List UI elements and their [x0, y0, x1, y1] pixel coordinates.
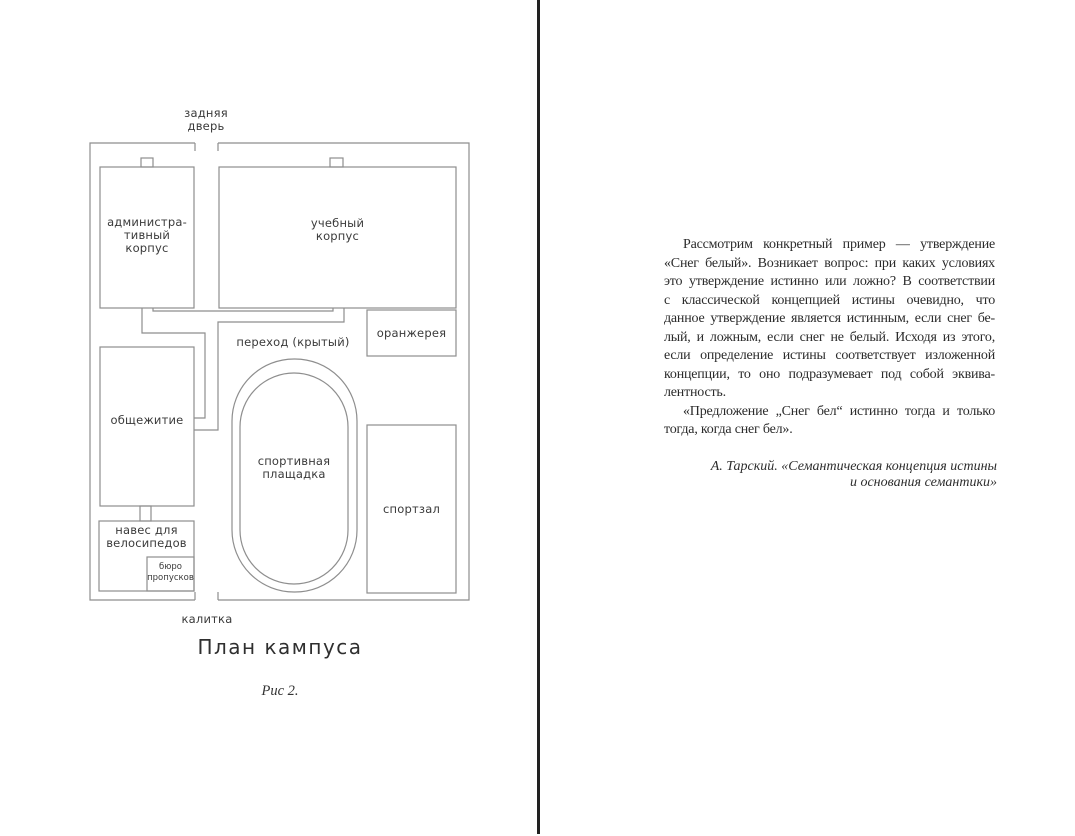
walkway-line-outer-left: [142, 308, 205, 418]
walkway-line-outer-right: [194, 308, 344, 430]
dormitory-label: общежитие: [100, 414, 194, 427]
gym-label: спортзал: [367, 503, 456, 516]
figure-number: Рис 2.: [90, 683, 470, 700]
body-text-block: Рассмотрим конкретный пример — утвержден…: [664, 236, 995, 440]
body-line: тогда, когда снег бел».: [664, 421, 995, 440]
body-line: лентность.: [664, 384, 995, 403]
attribution-line: А. Тарский. «Семантическая концепция ист…: [620, 459, 997, 475]
figure-caption: План кампуса: [90, 635, 470, 659]
admin-entrance-notch: [141, 158, 153, 167]
body-line: это утверждение истинно или ложно? В соо…: [664, 273, 995, 292]
greenhouse-label: оранжерея: [367, 327, 456, 340]
back-door-ticks: [195, 143, 218, 151]
body-line: «Предложение „Снег бел“ истинно тогда и …: [664, 403, 995, 422]
gate-ticks: [195, 592, 218, 600]
book-spread: задняя дверь администра- тивный корпус у…: [0, 0, 1075, 836]
attribution-line: и основания семантики»: [620, 475, 997, 491]
academic-building-label: учебный корпус: [219, 217, 456, 243]
body-line: Рассмотрим конкретный пример — утвержден…: [664, 236, 995, 255]
campus-plan-diagram: [0, 0, 537, 720]
dormitory-shed-notch: [140, 506, 151, 521]
sports-field-label: спортивная плащадка: [240, 455, 348, 481]
body-line: данное утверждение является истинным, ес…: [664, 310, 995, 329]
body-line: «Снег белый». Возникает вопрос: при каки…: [664, 255, 995, 274]
academic-entrance-notch: [330, 158, 343, 167]
body-line: лый, и ложным, если снег не белый. Исход…: [664, 329, 995, 348]
pass-office-label: бюро пропусков: [147, 562, 194, 584]
admin-building-label: администра- тивный корпус: [100, 216, 194, 255]
back-door-label: задняя дверь: [166, 107, 246, 133]
body-line: если определение истины соответствует из…: [664, 347, 995, 366]
body-line: концепции, то оно подразумевает под собо…: [664, 366, 995, 385]
body-line: с классической концепцией истины очевидн…: [664, 292, 995, 311]
bike-shed-label: навес для велосипедов: [99, 524, 194, 550]
gate-label: калитка: [167, 613, 247, 626]
quote-attribution: А. Тарский. «Семантическая концепция ист…: [620, 459, 997, 490]
page-divider: [537, 0, 540, 834]
walkway-label: переход (крытый): [230, 336, 356, 349]
